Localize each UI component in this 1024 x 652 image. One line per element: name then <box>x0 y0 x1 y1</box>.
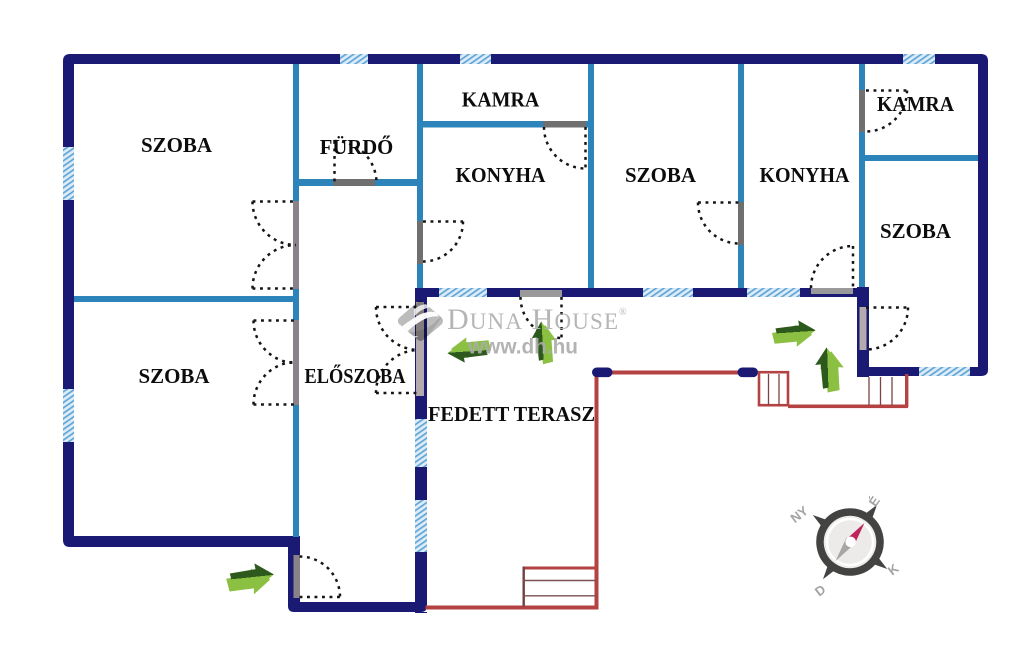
svg-text:KAMRA: KAMRA <box>877 92 955 116</box>
svg-text:KONYHA: KONYHA <box>456 163 547 187</box>
svg-text:SZOBA: SZOBA <box>141 133 213 157</box>
svg-text:®: ® <box>619 307 627 318</box>
svg-text:KONYHA: KONYHA <box>760 163 851 187</box>
svg-text:FEDETT TERASZ: FEDETT TERASZ <box>428 402 595 426</box>
svg-text:KAMRA: KAMRA <box>462 88 540 112</box>
svg-text:FÜRDŐ: FÜRDŐ <box>320 135 394 159</box>
svg-text:ELŐSZOBA: ELŐSZOBA <box>305 364 407 388</box>
svg-text:SZOBA: SZOBA <box>880 219 952 243</box>
svg-text:SZOBA: SZOBA <box>139 364 211 388</box>
svg-text:www.dh.hu: www.dh.hu <box>467 335 578 359</box>
svg-text:SZOBA: SZOBA <box>625 163 697 187</box>
